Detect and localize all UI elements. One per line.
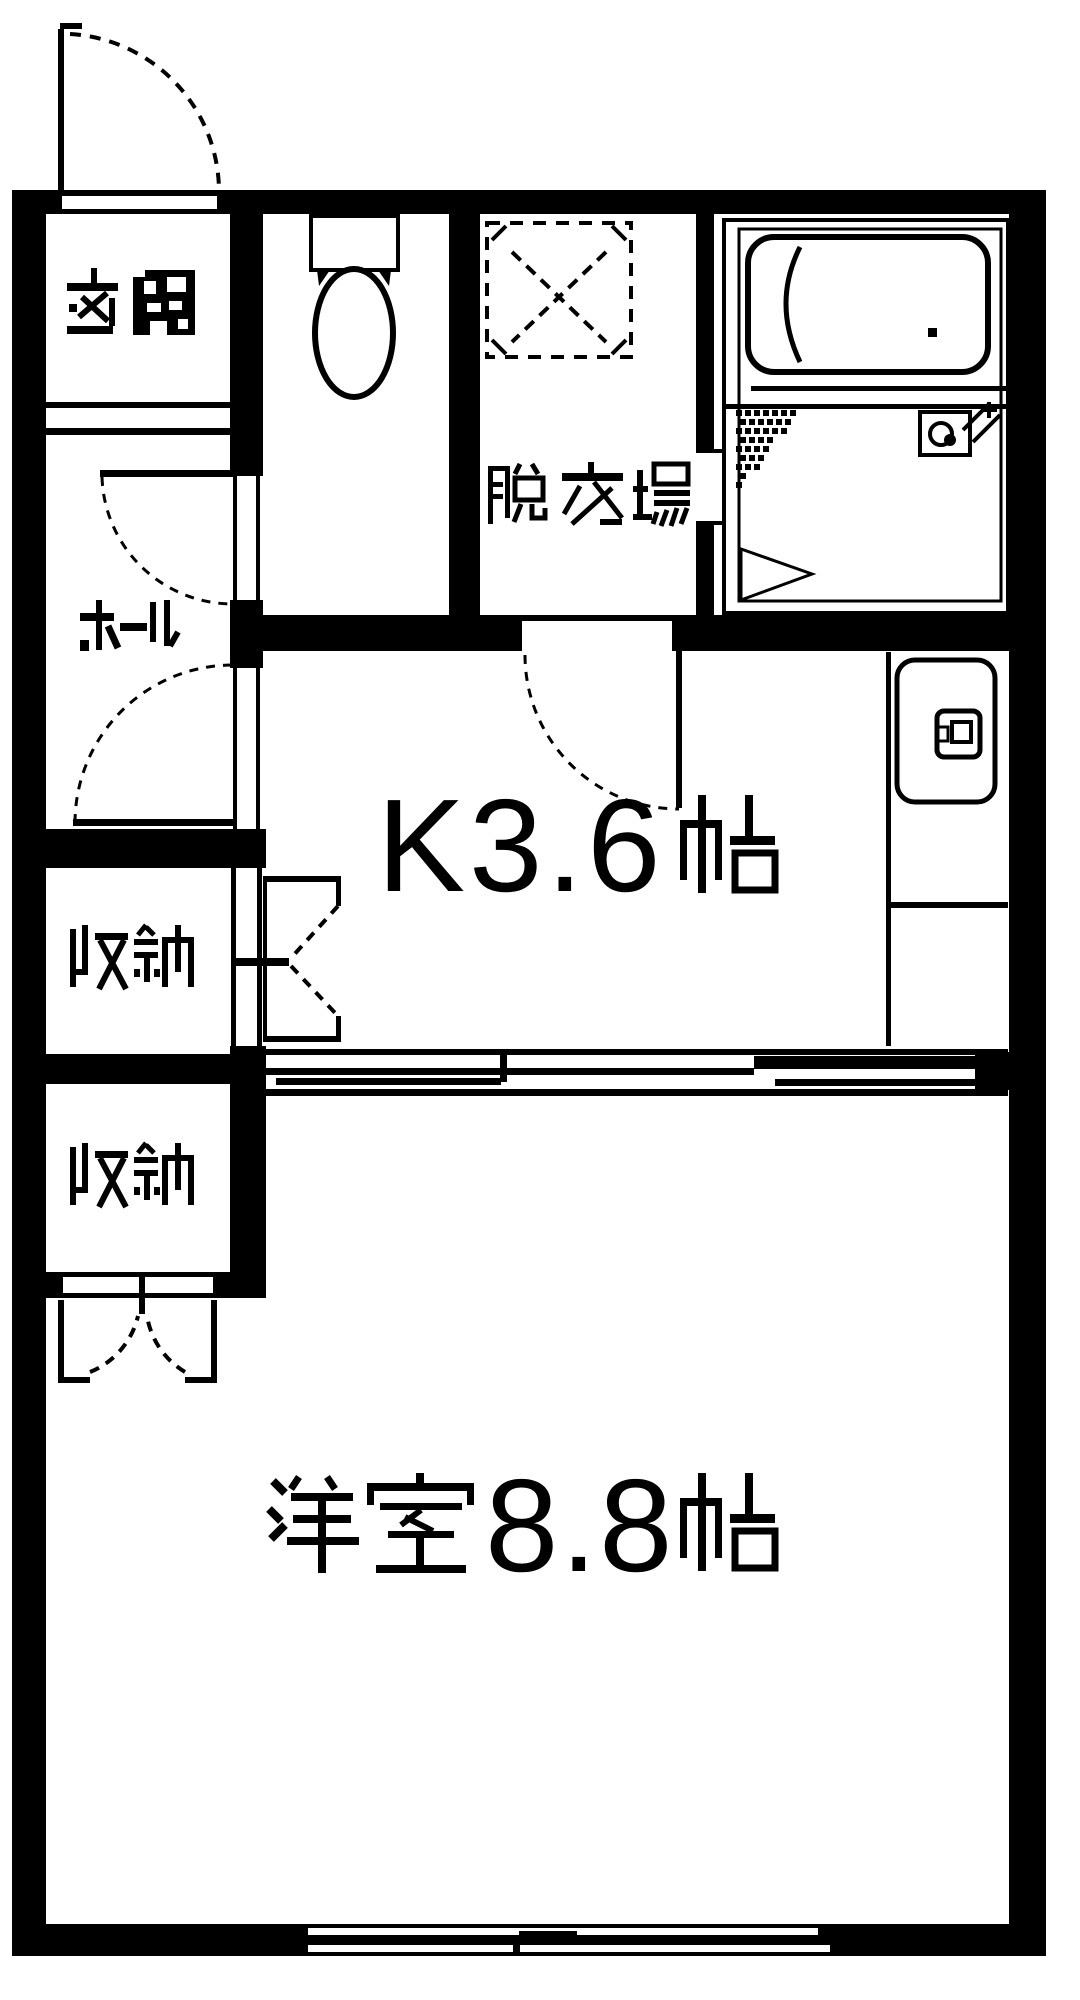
svg-text:8.8: 8.8 [485, 1452, 675, 1599]
svg-text:K3.6: K3.6 [377, 772, 665, 919]
